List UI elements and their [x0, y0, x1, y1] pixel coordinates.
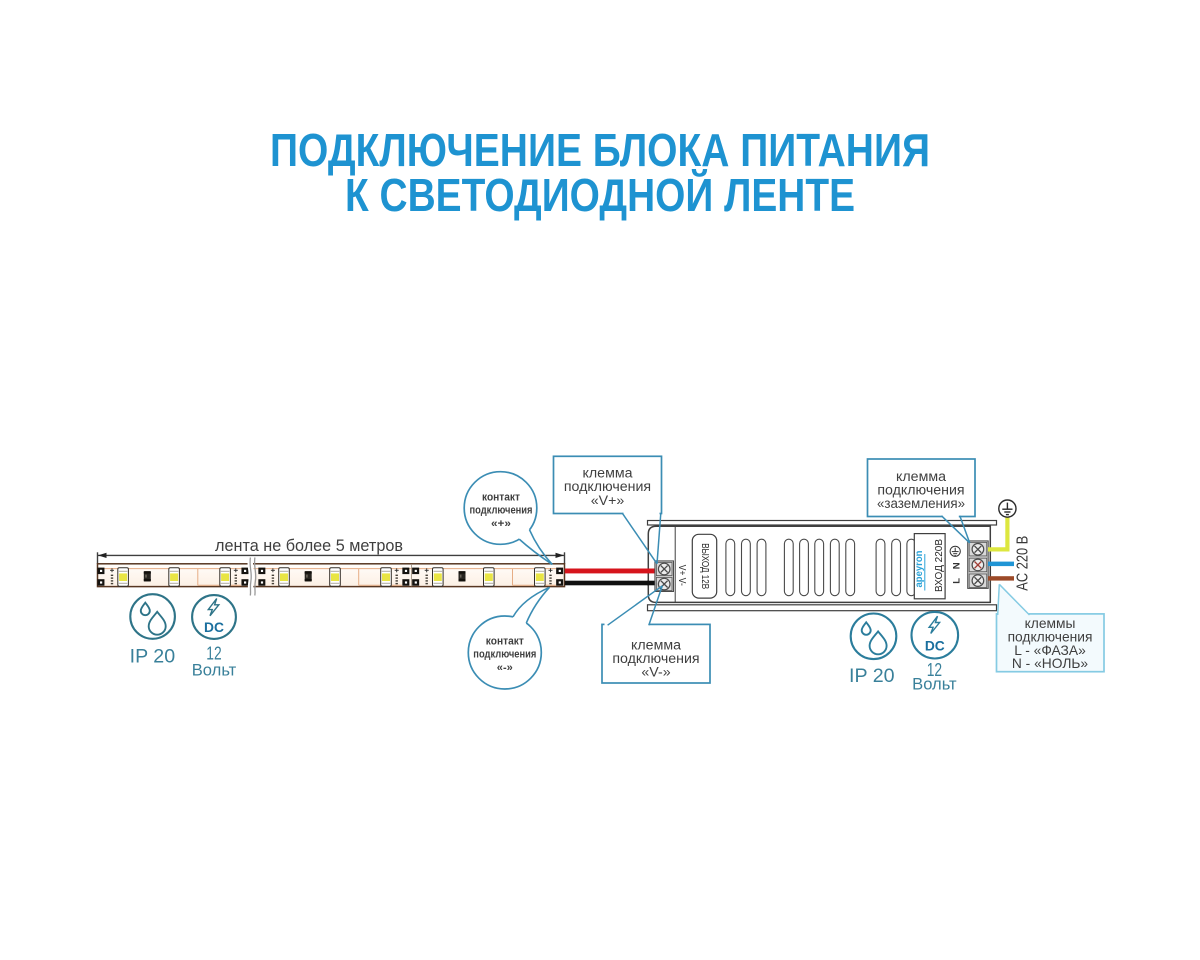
svg-text:N - «НОЛЬ»: N - «НОЛЬ» — [1012, 656, 1089, 671]
svg-text:«+»: «+» — [491, 518, 511, 530]
svg-text:контакт: контакт — [482, 492, 520, 504]
svg-text:AC 220 В: AC 220 В — [1014, 536, 1031, 591]
svg-text:12: 12 — [206, 643, 221, 664]
svg-text:К СВЕТОДИОДНОЙ ЛЕНТЕ: К СВЕТОДИОДНОЙ ЛЕНТЕ — [345, 169, 855, 221]
svg-text:Вольт: Вольт — [192, 662, 237, 680]
svg-text:Вольт: Вольт — [912, 675, 957, 693]
svg-text:подключения: подключения — [473, 649, 536, 661]
svg-text:подключения: подключения — [470, 505, 533, 517]
svg-text:DC: DC — [925, 638, 945, 653]
svg-text:DC: DC — [204, 620, 224, 635]
svg-text:IP 20: IP 20 — [130, 647, 176, 668]
svg-text:IP 20: IP 20 — [849, 666, 895, 687]
svg-text:лента не более 5 метров: лента не более 5 метров — [215, 537, 403, 555]
svg-text:V+ V-: V+ V- — [676, 565, 687, 586]
svg-text:«V+»: «V+» — [591, 493, 625, 509]
svg-text:контакт: контакт — [486, 636, 524, 648]
svg-text:N: N — [951, 562, 962, 569]
svg-text:apeyron: apeyron — [914, 550, 925, 587]
svg-text:L: L — [951, 578, 962, 584]
svg-text:«-»: «-» — [497, 662, 513, 674]
svg-text:ВХОД 220В: ВХОД 220В — [934, 539, 945, 592]
svg-text:ВЫХОД 12В: ВЫХОД 12В — [699, 543, 710, 589]
svg-text:«V-»: «V-» — [641, 665, 670, 681]
svg-text:«заземления»: «заземления» — [877, 496, 965, 512]
